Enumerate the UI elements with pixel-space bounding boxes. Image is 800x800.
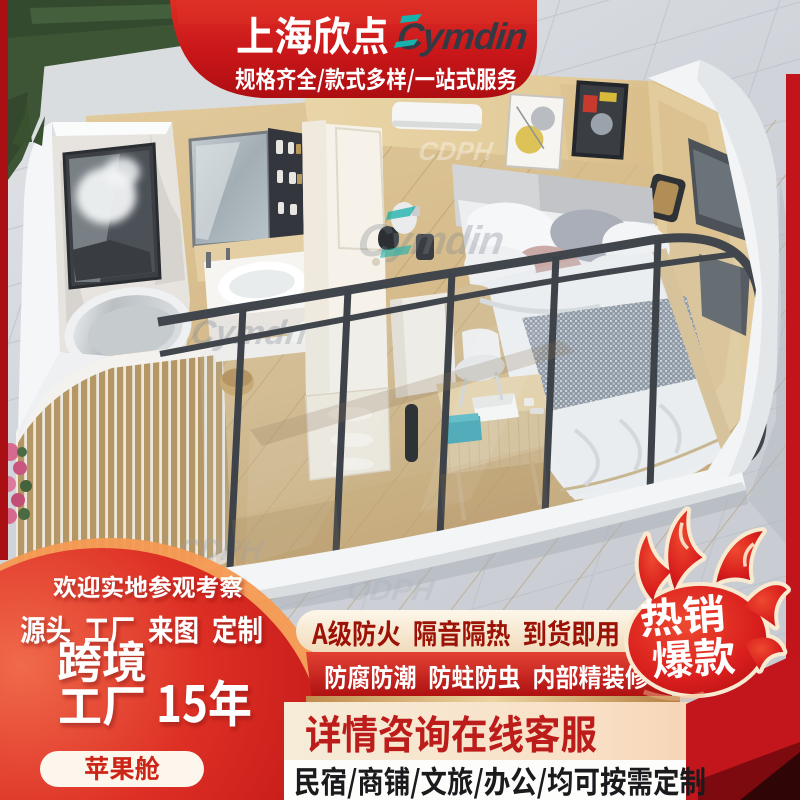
svg-text:CDPH: CDPH [417, 136, 496, 166]
svg-text:Cymdin: Cymdin [395, 15, 529, 57]
svg-text:ymdin: ymdin [385, 218, 506, 263]
